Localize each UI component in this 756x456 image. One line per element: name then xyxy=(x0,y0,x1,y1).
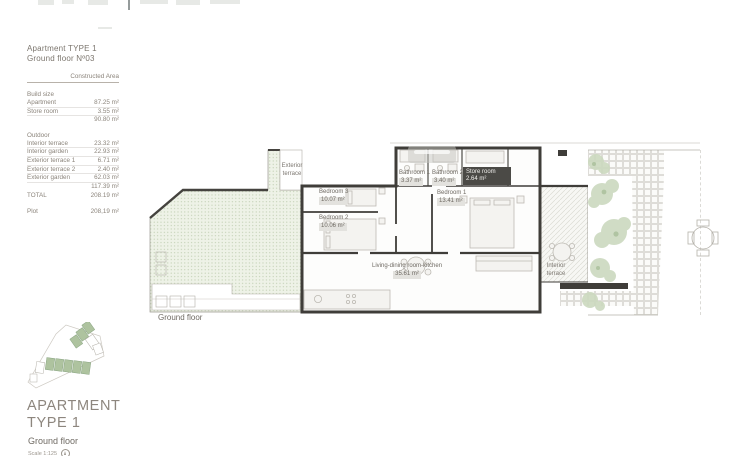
room-area: 3.40 m² xyxy=(432,178,456,186)
scale-row: Scale 1:125 xyxy=(28,449,70,456)
label-line: terrace xyxy=(281,171,303,179)
label-line: Interior xyxy=(543,263,569,271)
footer-title: APARTMENT TYPE 1 xyxy=(27,398,120,431)
room-name: Bathroom 1 xyxy=(399,170,430,177)
room-name: Bedroom 3 xyxy=(319,189,348,196)
watermark xyxy=(408,146,456,163)
room-name: Store room xyxy=(466,169,508,177)
room-bedroom1: Bedroom 1 13.41 m² xyxy=(437,190,466,206)
room-bathroom2: Bathroom 2 3.40 m² xyxy=(432,170,463,186)
room-area: 3.37 m² xyxy=(399,178,423,186)
scale-text: Scale 1:125 xyxy=(28,451,57,456)
room-bathroom1: Bathroom 1 3.37 m² xyxy=(399,170,430,186)
exterior-garden xyxy=(150,150,302,312)
room-name: Bedroom 2 xyxy=(319,215,348,222)
floor-plan-svg xyxy=(0,0,756,456)
room-area: 13.41 m² xyxy=(437,198,465,206)
label-exterior-terrace: Exterior terrace xyxy=(281,163,303,178)
footer-title-line: APARTMENT xyxy=(27,398,120,415)
room-area: 10.06 m² xyxy=(319,223,347,231)
plan-caption: Ground floor xyxy=(158,313,202,322)
room-bedroom2: Bedroom 2 10.06 m² xyxy=(319,215,348,231)
room-area: 10.07 m² xyxy=(319,197,347,205)
room-living: Living-dining room-kitchen 35.61 m² xyxy=(372,263,442,279)
room-name: Bathroom 2 xyxy=(432,170,463,177)
label-interior-terrace: Interior terrace xyxy=(543,263,569,278)
room-area: 2.64 m² xyxy=(466,176,508,184)
label-line: terrace xyxy=(543,271,569,279)
drawing-sheet: Apartment TYPE 1 Ground floor Nº03 Const… xyxy=(0,0,756,456)
north-arrow-icon xyxy=(61,449,70,456)
room-name: Bedroom 1 xyxy=(437,190,466,197)
footer-title-line: TYPE 1 xyxy=(27,415,120,432)
room-bedroom3: Bedroom 3 10.07 m² xyxy=(319,189,348,205)
footer-subtitle: Ground floor xyxy=(28,436,78,446)
label-line: Exterior xyxy=(281,163,303,171)
key-plan-svg xyxy=(20,322,112,392)
room-store: Store room 2.64 m² xyxy=(463,167,511,185)
room-name: Living-dining room-kitchen xyxy=(372,263,442,270)
room-area: 35.61 m² xyxy=(393,271,421,279)
